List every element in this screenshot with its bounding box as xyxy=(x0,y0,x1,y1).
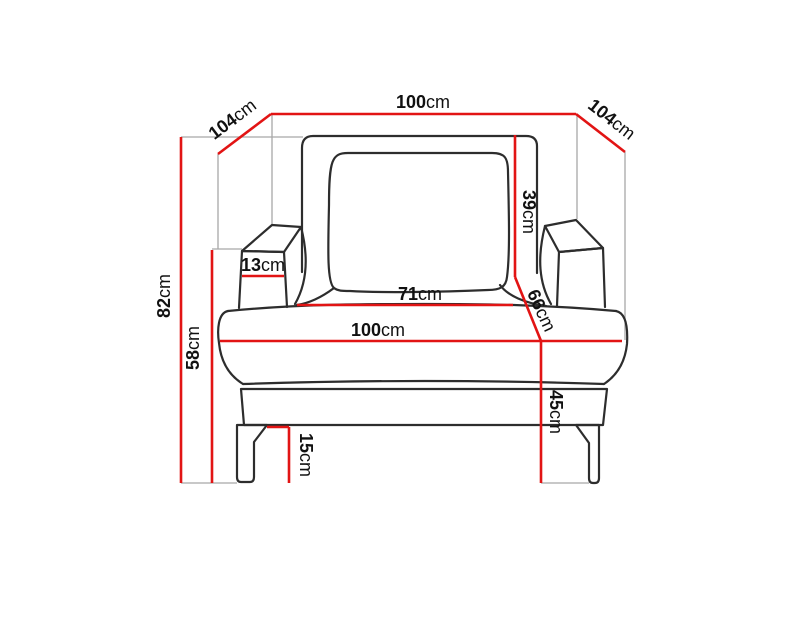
dim-label-depth-right: 104cm xyxy=(584,95,639,144)
back-cushion xyxy=(328,153,509,292)
left-leg xyxy=(237,425,267,482)
dim-label-seat-width-between-armrests: 71cm xyxy=(398,284,442,304)
left-armrest-top-face xyxy=(242,225,301,252)
left-armrest-inner-edge xyxy=(295,227,306,304)
right-armrest-front-face xyxy=(557,248,605,307)
right-leg xyxy=(576,425,599,483)
dim-label-depth-left: 104cm xyxy=(205,95,260,143)
right-armrest-top-face xyxy=(545,220,603,252)
dim-label-overall-width-top: 100cm xyxy=(396,92,450,112)
seat-back-junction-left xyxy=(297,288,334,305)
dim-label-backrest-cushion-height: 39cm xyxy=(519,190,539,234)
dim-label-armrest-height: 58cm xyxy=(183,326,203,370)
diagram-canvas: 100cm 104cm 104cm 82cm 58cm 13cm 39cm 66… xyxy=(0,0,800,618)
dim-label-seat-height: 45cm xyxy=(546,390,566,434)
dim-label-leg-height: 15cm xyxy=(296,433,316,477)
seat-bottom-edge xyxy=(243,381,604,384)
dimension-labels: 100cm 104cm 104cm 82cm 58cm 13cm 39cm 66… xyxy=(154,92,639,477)
dim-label-overall-height: 82cm xyxy=(154,274,174,318)
dim-label-seat-width: 100cm xyxy=(351,320,405,340)
dim-label-armrest-width: 13cm xyxy=(241,255,285,275)
armchair-dimension-diagram: 100cm 104cm 104cm 82cm 58cm 13cm 39cm 66… xyxy=(0,0,800,618)
seat-right-bulge xyxy=(604,311,627,384)
seat-left-bulge xyxy=(218,311,243,384)
